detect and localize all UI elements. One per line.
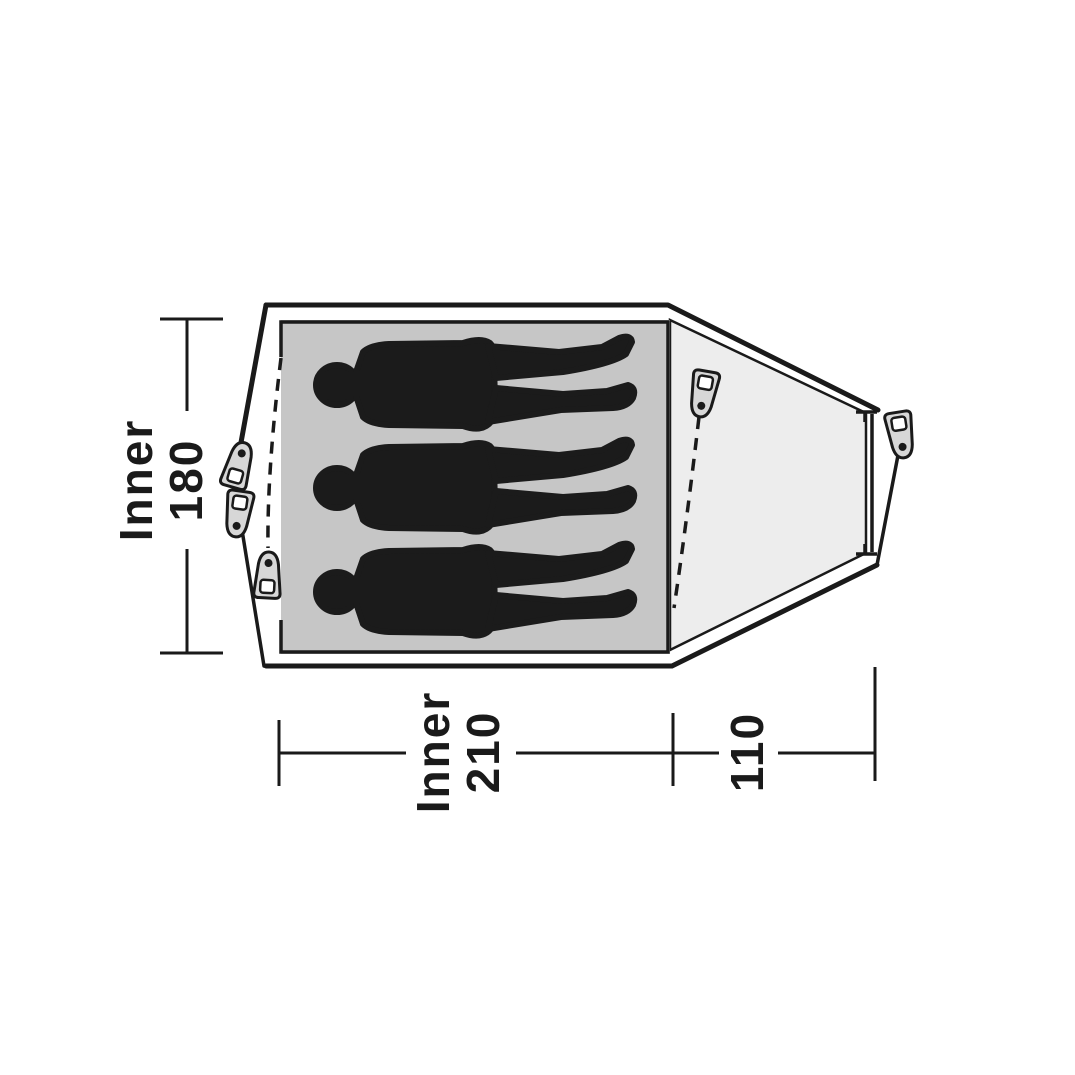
peg-icon-right <box>884 410 917 460</box>
inner-door-zip-line <box>268 358 281 548</box>
peg-icon-left-bottom <box>254 551 283 598</box>
label-inner-width-word: Inner <box>110 419 162 541</box>
label-vestibule-depth-value: 110 <box>721 712 773 792</box>
peg-icon-left-upper <box>219 439 257 490</box>
peg-icon-left-lower <box>222 489 254 538</box>
tent-floorplan: Inner 180 Inner 210 110 <box>0 0 1075 1075</box>
dimension-vestibule-line <box>778 667 875 781</box>
label-inner-length-value: 210 <box>457 711 509 794</box>
fly-left-upper-edge <box>240 305 266 448</box>
diagram-canvas: Inner 180 Inner 210 110 <box>0 0 1075 1075</box>
label-inner-length-word: Inner <box>407 691 459 813</box>
right-guy-line <box>877 450 899 565</box>
label-inner-width-value: 180 <box>160 439 212 522</box>
